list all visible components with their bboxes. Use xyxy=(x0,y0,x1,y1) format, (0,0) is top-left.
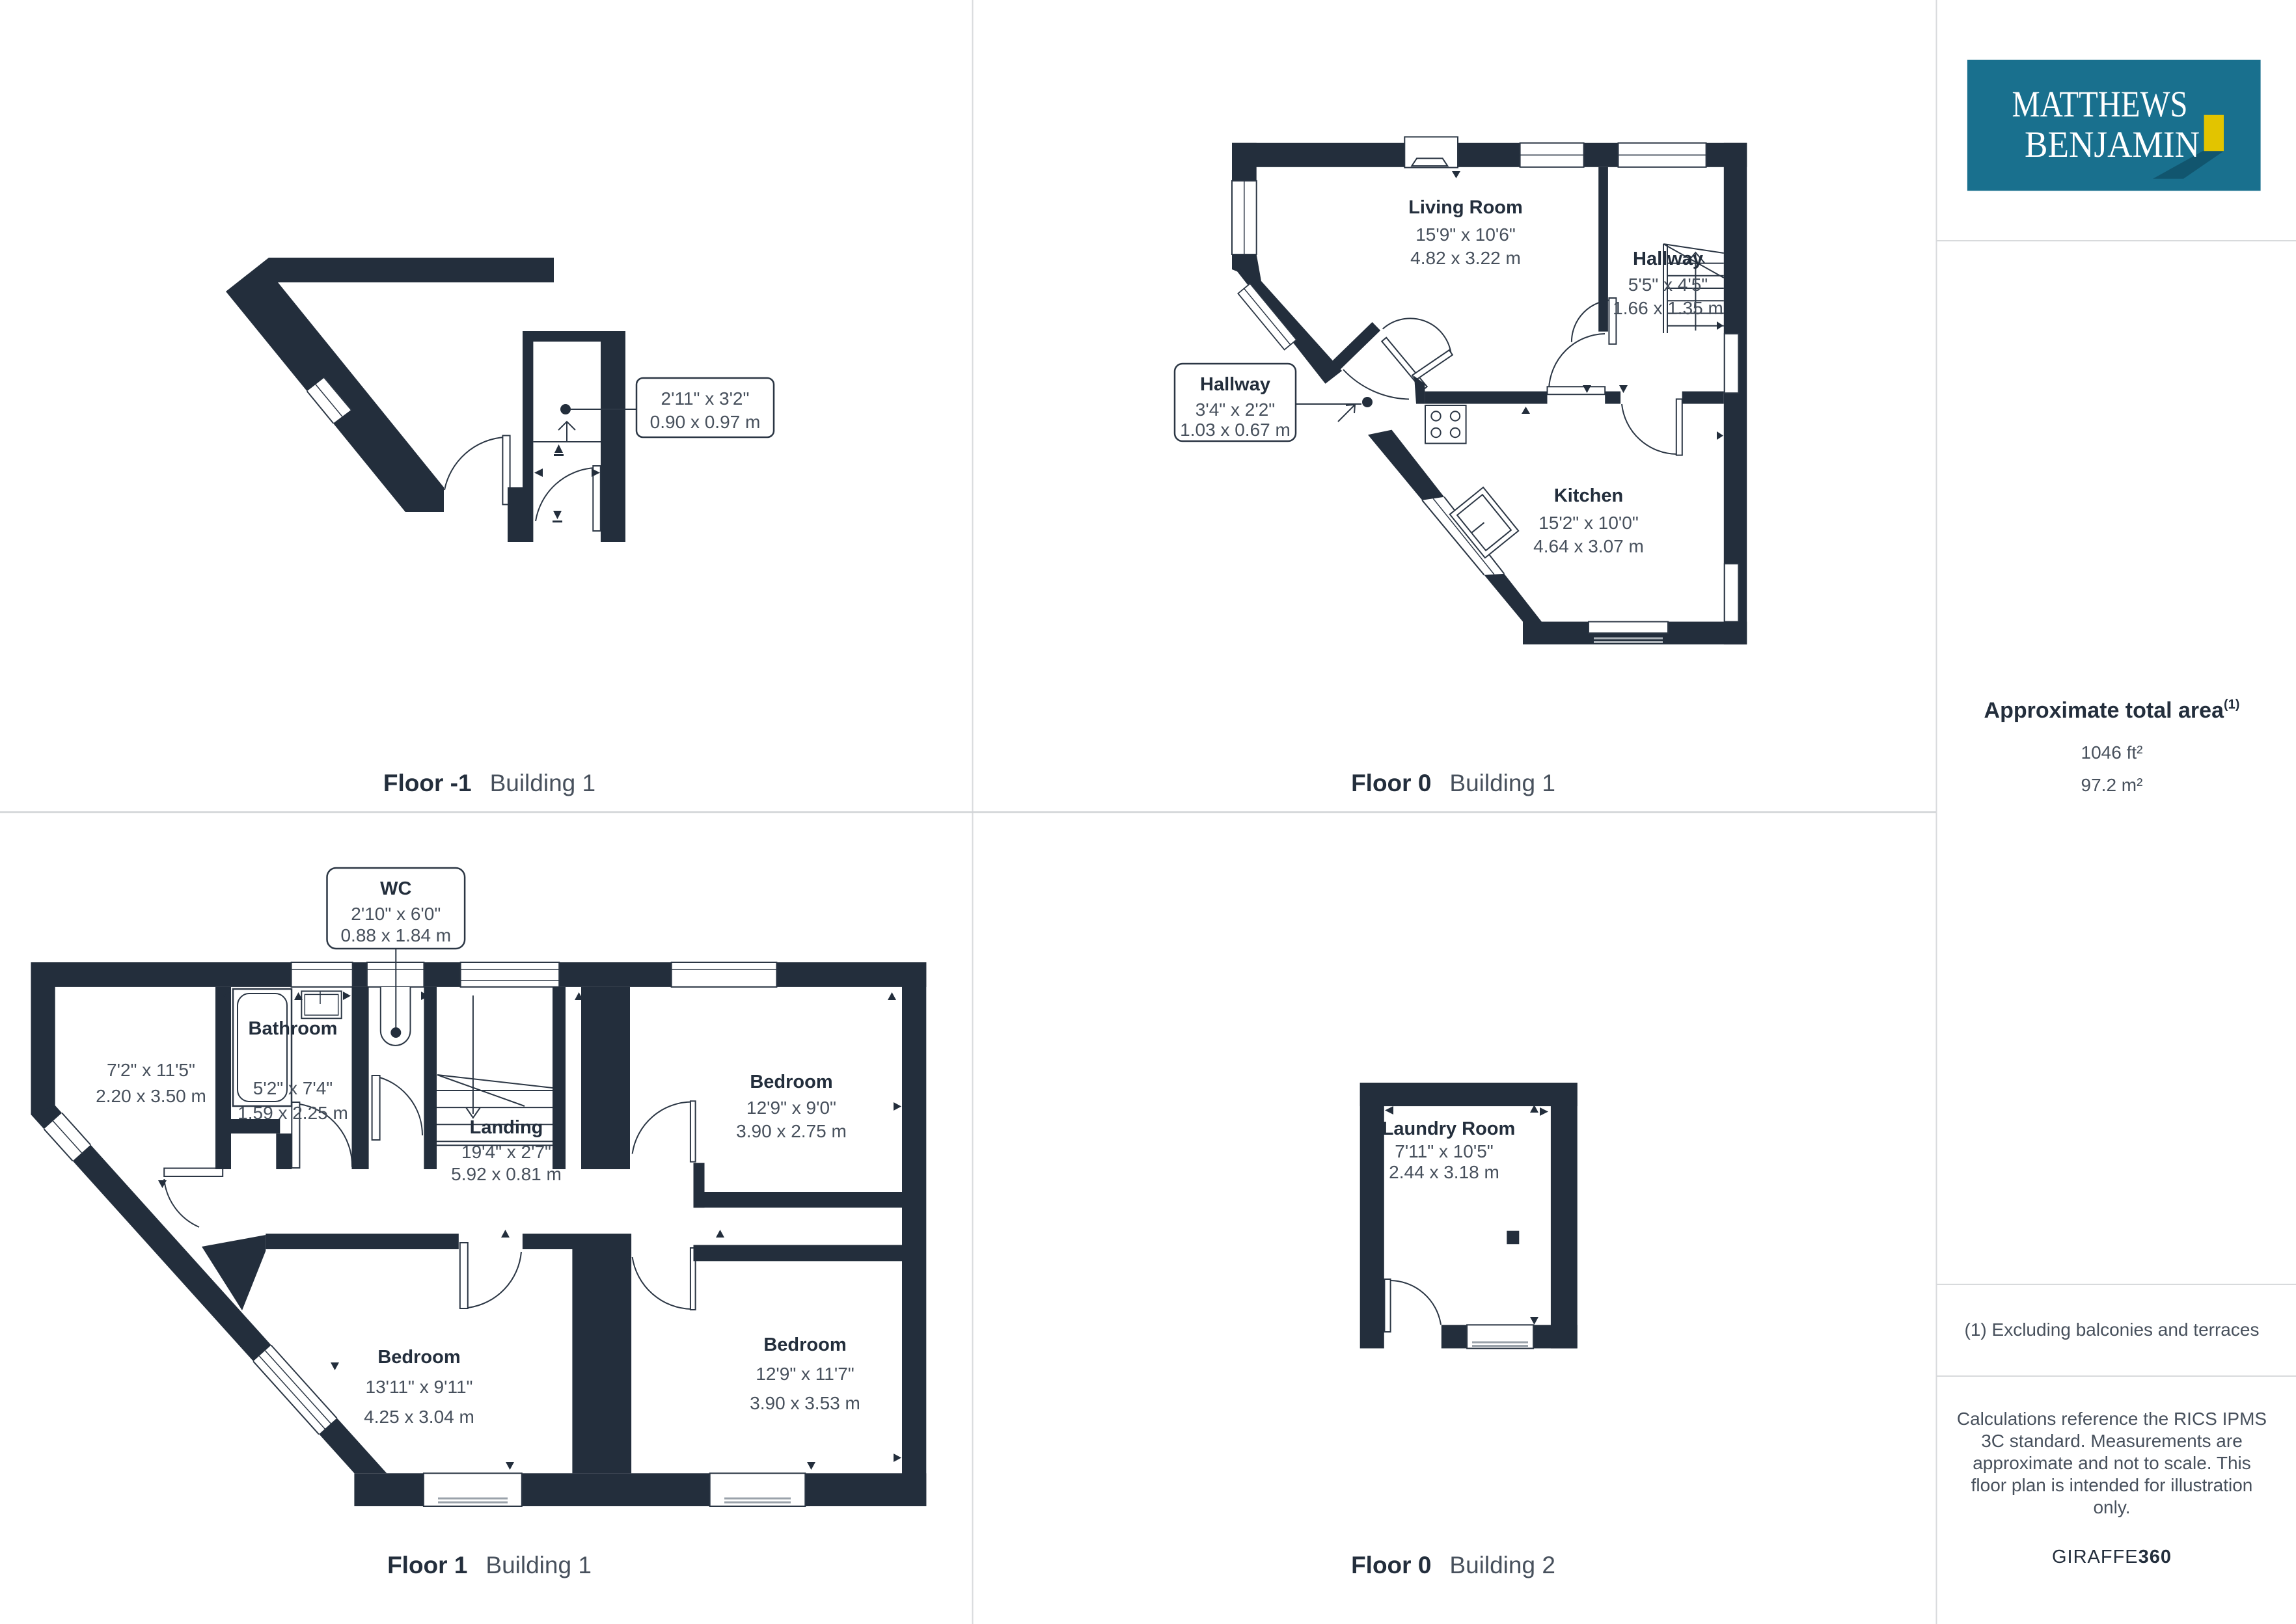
svg-text:Laundry Room: Laundry Room xyxy=(1382,1118,1516,1139)
svg-text:Hallway: Hallway xyxy=(1200,374,1270,395)
svg-text:Bedroom: Bedroom xyxy=(763,1334,846,1355)
svg-text:GIRAFFE360: GIRAFFE360 xyxy=(2052,1547,2172,1567)
svg-text:Floor -1Building 1: Floor -1Building 1 xyxy=(383,770,595,796)
svg-text:0.88 x 1.84 m: 0.88 x 1.84 m xyxy=(340,925,451,945)
svg-text:Calculations reference the RIC: Calculations reference the RICS IPMS xyxy=(1957,1409,2267,1429)
svg-text:BENJAMIN: BENJAMIN xyxy=(2025,124,2200,165)
svg-text:1.03 x 0.67 m: 1.03 x 0.67 m xyxy=(1180,420,1291,440)
svg-text:4.25 x 3.04 m: 4.25 x 3.04 m xyxy=(364,1407,474,1427)
svg-text:Kitchen: Kitchen xyxy=(1554,485,1623,506)
svg-text:2.20 x 3.50 m: 2.20 x 3.50 m xyxy=(96,1086,206,1106)
svg-text:3C standard. Measurements are: 3C standard. Measurements are xyxy=(1981,1431,2243,1451)
svg-text:7'11" x 10'5": 7'11" x 10'5" xyxy=(1395,1141,1493,1161)
svg-text:19'4" x 2'7": 19'4" x 2'7" xyxy=(461,1142,551,1162)
svg-text:3.90 x 3.53 m: 3.90 x 3.53 m xyxy=(750,1393,860,1413)
svg-text:3.90 x 2.75 m: 3.90 x 2.75 m xyxy=(736,1121,847,1141)
svg-text:15'9" x 10'6": 15'9" x 10'6" xyxy=(1415,224,1516,245)
svg-text:approximate and not to scale.: approximate and not to scale. This xyxy=(1973,1453,2251,1473)
svg-text:Living Room: Living Room xyxy=(1408,197,1523,218)
svg-text:4.64 x 3.07 m: 4.64 x 3.07 m xyxy=(1533,536,1644,556)
svg-text:only.: only. xyxy=(2093,1497,2130,1517)
svg-text:WC: WC xyxy=(380,878,411,899)
svg-text:15'2" x 10'0": 15'2" x 10'0" xyxy=(1538,513,1639,533)
svg-text:Approximate total area(1): Approximate total area(1) xyxy=(1984,697,2240,723)
svg-text:1.59 x 2.25 m: 1.59 x 2.25 m xyxy=(238,1103,348,1123)
svg-text:2.44 x 3.18 m: 2.44 x 3.18 m xyxy=(1389,1162,1499,1182)
svg-text:Bedroom: Bedroom xyxy=(750,1072,832,1092)
svg-text:Floor 0Building 2: Floor 0Building 2 xyxy=(1351,1552,1555,1578)
svg-text:(1) Excluding balconies and te: (1) Excluding balconies and terraces xyxy=(1965,1319,2260,1340)
svg-text:13'11" x 9'11": 13'11" x 9'11" xyxy=(366,1377,473,1397)
svg-text:1.66 x 1.35 m: 1.66 x 1.35 m xyxy=(1613,298,1723,318)
svg-text:2'11" x 3'2": 2'11" x 3'2" xyxy=(661,388,750,409)
svg-text:5.92 x 0.81 m: 5.92 x 0.81 m xyxy=(451,1164,562,1184)
svg-text:97.2 m²: 97.2 m² xyxy=(2081,775,2143,795)
svg-text:Hallway: Hallway xyxy=(1633,249,1703,269)
svg-text:Landing: Landing xyxy=(470,1117,543,1138)
svg-text:Floor 1Building 1: Floor 1Building 1 xyxy=(387,1552,592,1578)
svg-text:1046 ft²: 1046 ft² xyxy=(2081,742,2143,763)
svg-text:MATTHEWS: MATTHEWS xyxy=(2012,84,2188,125)
svg-text:12'9" x 11'7": 12'9" x 11'7" xyxy=(756,1364,854,1384)
svg-text:12'9" x 9'0": 12'9" x 9'0" xyxy=(746,1098,836,1118)
svg-text:3'4" x 2'2": 3'4" x 2'2" xyxy=(1196,399,1275,420)
svg-text:4.82 x 3.22 m: 4.82 x 3.22 m xyxy=(1410,248,1521,268)
svg-text:0.90 x 0.97 m: 0.90 x 0.97 m xyxy=(650,412,761,432)
svg-text:floor plan is intended for ill: floor plan is intended for illustration xyxy=(1971,1475,2253,1495)
svg-text:Bedroom: Bedroom xyxy=(377,1347,460,1368)
svg-text:5'5" x 4'5": 5'5" x 4'5" xyxy=(1628,275,1708,295)
svg-text:2'10" x 6'0": 2'10" x 6'0" xyxy=(351,904,441,924)
svg-text:7'2" x 11'5": 7'2" x 11'5" xyxy=(107,1060,195,1080)
svg-text:Bathroom: Bathroom xyxy=(249,1018,338,1039)
svg-text:5'2" x 7'4": 5'2" x 7'4" xyxy=(253,1078,333,1098)
svg-text:Floor 0Building 1: Floor 0Building 1 xyxy=(1351,770,1555,796)
